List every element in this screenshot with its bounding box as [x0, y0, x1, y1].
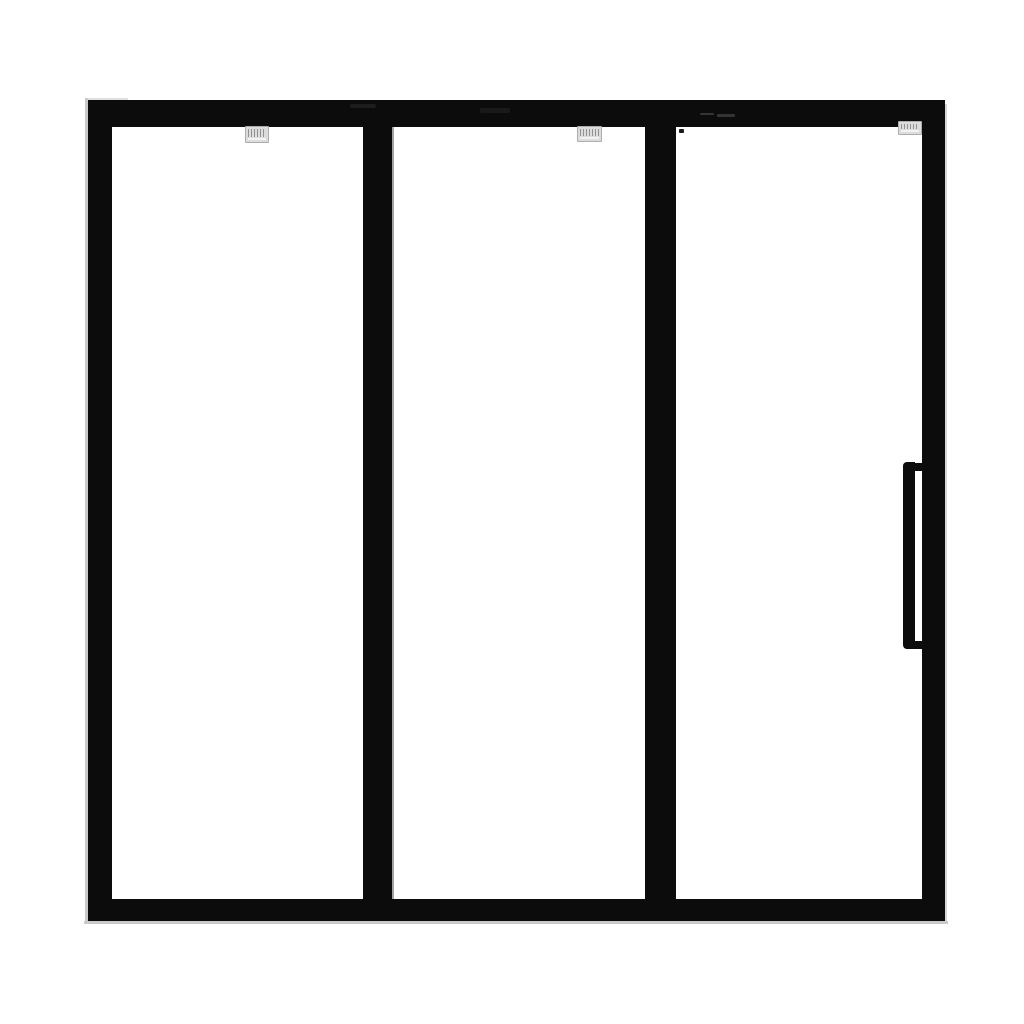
- frame-reflection-mark: [480, 108, 510, 113]
- frame-reflection-mark: [350, 104, 376, 108]
- door-handle-arm-bottom: [912, 641, 923, 649]
- frame-reflection-mark: [700, 113, 714, 115]
- door-handle-arm-top: [912, 463, 923, 471]
- door-handle-bar: [903, 462, 915, 649]
- glass-speck: [679, 129, 684, 133]
- label-sticker-panel-1: [245, 126, 269, 143]
- frame-edge-highlight-bottom: [84, 921, 948, 924]
- glass-panel-1: [112, 127, 363, 899]
- glass-panel-2: [394, 127, 645, 899]
- label-sticker-panel-2: [577, 126, 602, 142]
- mullion-edge-highlight: [392, 127, 394, 899]
- frame-reflection-mark: [717, 114, 735, 117]
- frame-edge-highlight-right: [945, 104, 947, 921]
- label-sticker-panel-3: [898, 121, 922, 135]
- glass-panel-3: [676, 127, 922, 899]
- photo-canvas: [0, 0, 1024, 1024]
